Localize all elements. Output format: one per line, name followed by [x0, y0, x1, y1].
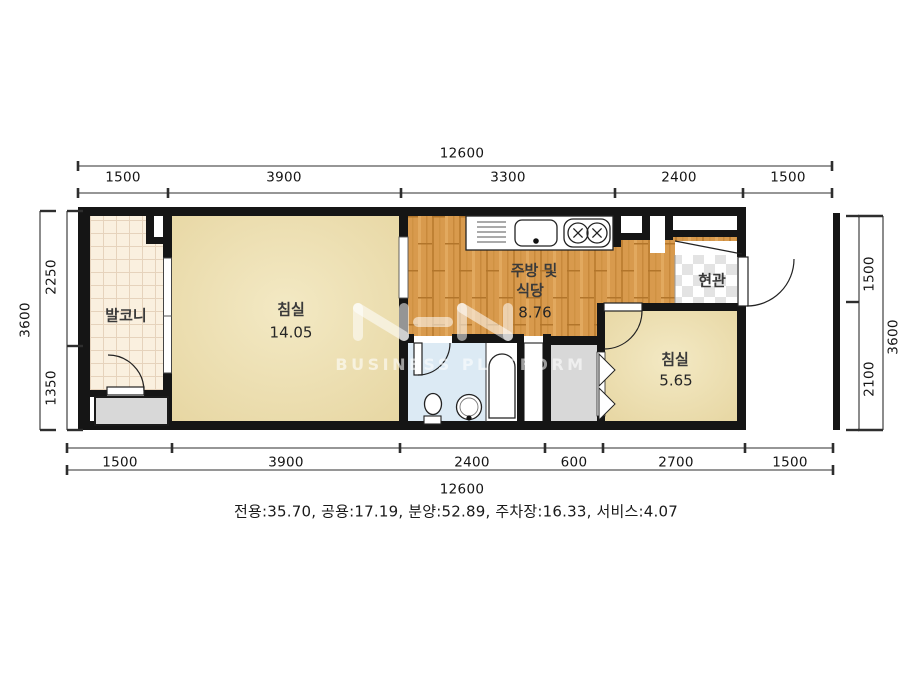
bedroom-main-area: 14.05 — [270, 326, 313, 341]
dim-right-total: 3600 — [887, 319, 901, 355]
dim-top-total: 12600 — [440, 147, 484, 161]
dim-top-seg-0: 1500 — [105, 171, 141, 185]
dim-right-seg-0: 1500 — [863, 256, 877, 292]
area-summary: 전용:35.70, 공용:17.19, 분양:52.89, 주차장:16.33,… — [234, 505, 678, 520]
dim-right-seg-1: 2100 — [863, 361, 877, 397]
floorplan-canvas: BUSINESS PLATFORM 12600 1500 3900 3300 2… — [0, 0, 923, 676]
entrance-label: 현관 — [698, 274, 726, 289]
dim-bottom-seg-3: 600 — [561, 456, 588, 470]
bedroom-small-label: 침실 — [661, 353, 689, 368]
exterior-platform — [95, 397, 168, 425]
toilet-icon — [425, 394, 442, 415]
kitchen-area: 8.76 — [518, 306, 551, 321]
room-floors — [90, 215, 737, 422]
bedroom-main-label: 침실 — [277, 303, 305, 318]
dim-left-seg-0: 2250 — [45, 259, 59, 295]
dim-bottom-seg-4: 2700 — [658, 456, 694, 470]
dim-bottom-seg-1: 3900 — [268, 456, 304, 470]
dim-bottom-seg-2: 2400 — [454, 456, 490, 470]
watermark-text: BUSINESS PLATFORM — [335, 357, 586, 373]
kitchen-label-line1: 주방 및 — [511, 264, 558, 279]
dim-top-seg-3: 2400 — [661, 171, 697, 185]
dim-left-total: 3600 — [19, 302, 33, 338]
balcony-label: 발코니 — [105, 309, 146, 324]
kitchen-label-line2: 식당 — [516, 284, 544, 299]
closet-a — [621, 215, 642, 233]
closet-c — [673, 215, 737, 232]
balcony-door — [107, 387, 144, 395]
dim-top-seg-1: 3900 — [266, 171, 302, 185]
dim-left-seg-1: 1350 — [45, 370, 59, 406]
bedroom-small-area: 5.65 — [659, 374, 692, 389]
closet-b — [650, 215, 665, 253]
bedroom-main-opening — [399, 237, 408, 298]
bedroom-main-floor — [172, 216, 399, 421]
dim-bottom-seg-0: 1500 — [102, 456, 138, 470]
dim-top-seg-2: 3300 — [490, 171, 526, 185]
bedroom-small-door — [604, 303, 642, 311]
floorplan-drawing — [0, 0, 923, 676]
entrance-door — [738, 257, 748, 306]
dim-top-seg-4: 1500 — [770, 171, 806, 185]
corridor-wall — [833, 213, 840, 430]
dim-bottom-total: 12600 — [440, 483, 484, 497]
dim-bottom-seg-5: 1500 — [772, 456, 808, 470]
